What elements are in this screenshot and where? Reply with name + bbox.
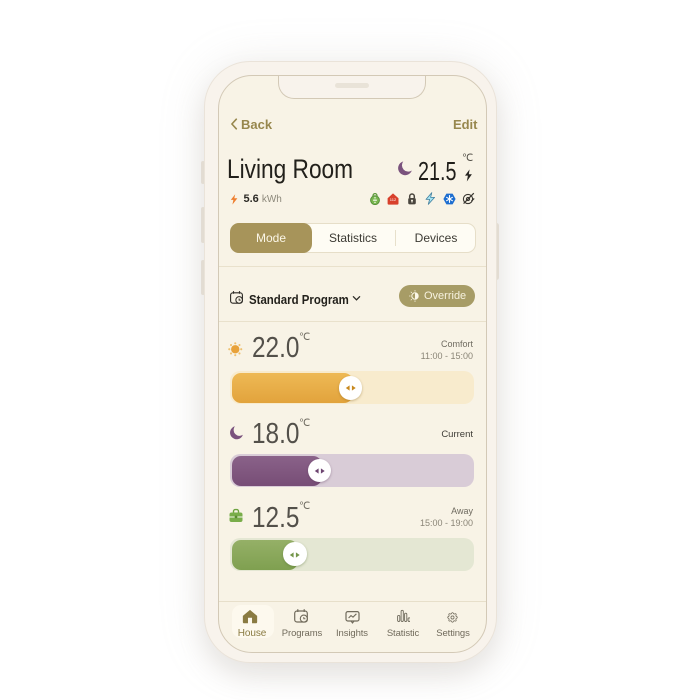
svg-text:112: 112 bbox=[390, 197, 397, 202]
